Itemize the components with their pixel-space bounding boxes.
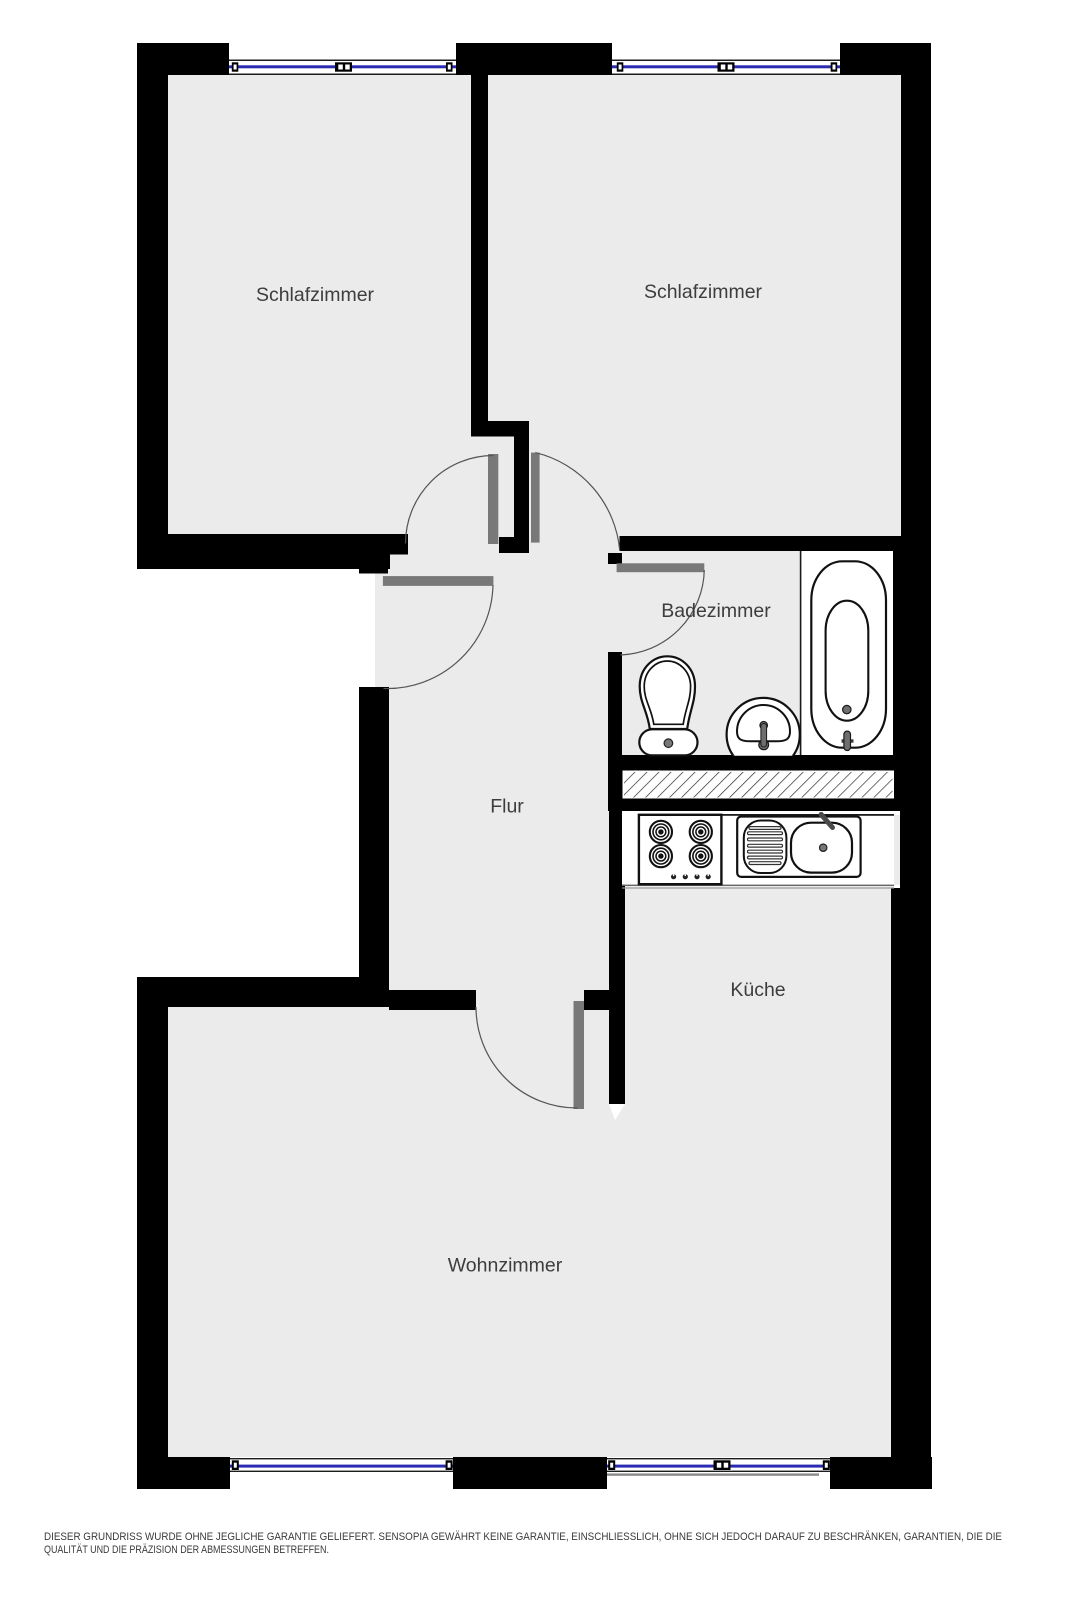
svg-text:Küche: Küche: [730, 979, 785, 1001]
svg-text:Wohnzimmer: Wohnzimmer: [448, 1255, 563, 1277]
svg-text:Schlafzimmer: Schlafzimmer: [644, 281, 763, 303]
svg-text:QUALITÄT UND DIE PRÄZISION DER: QUALITÄT UND DIE PRÄZISION DER ABMESSUNG…: [44, 1544, 329, 1556]
svg-text:Flur: Flur: [490, 796, 524, 818]
svg-text:DIESER GRUNDRISS WURDE OHNE JE: DIESER GRUNDRISS WURDE OHNE JEGLICHE GAR…: [44, 1531, 1002, 1543]
svg-text:Badezimmer: Badezimmer: [661, 600, 771, 622]
svg-text:Schlafzimmer: Schlafzimmer: [256, 284, 375, 306]
